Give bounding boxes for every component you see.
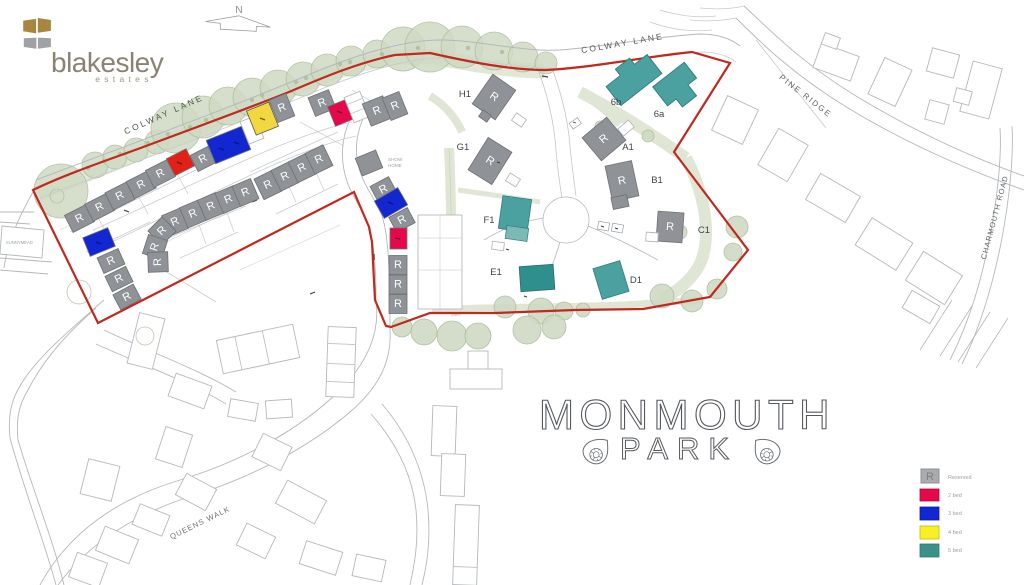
svg-text:E1: E1 <box>490 267 502 278</box>
svg-text:PARK: PARK <box>620 431 738 466</box>
svg-text:SHOW: SHOW <box>388 157 403 162</box>
svg-text:R: R <box>394 298 402 310</box>
svg-text:N: N <box>235 5 242 16</box>
svg-text:B1: B1 <box>651 175 663 186</box>
svg-text:R: R <box>666 221 675 234</box>
svg-text:R: R <box>926 471 934 483</box>
svg-text:6b: 6b <box>611 97 622 108</box>
svg-text:H1: H1 <box>459 89 471 100</box>
svg-text:4 bed: 4 bed <box>948 530 962 536</box>
svg-text:F1: F1 <box>483 215 494 226</box>
svg-text:6a: 6a <box>654 109 665 120</box>
svg-text:R: R <box>394 279 402 291</box>
svg-text:3 bed: 3 bed <box>948 511 962 517</box>
svg-text:2 bed: 2 bed <box>948 493 962 499</box>
svg-text:D1: D1 <box>630 275 642 286</box>
svg-text:R: R <box>152 258 164 266</box>
svg-text:5 bed: 5 bed <box>948 548 962 554</box>
svg-text:Reserved: Reserved <box>948 475 972 481</box>
svg-text:G1: G1 <box>457 142 470 153</box>
svg-text:C1: C1 <box>698 225 710 236</box>
svg-text:estates: estates <box>95 74 153 84</box>
svg-text:A1: A1 <box>622 142 634 153</box>
svg-text:R: R <box>394 259 402 271</box>
svg-text:SUNNYMEAD: SUNNYMEAD <box>6 240 33 245</box>
svg-text:HOME: HOME <box>388 163 402 168</box>
